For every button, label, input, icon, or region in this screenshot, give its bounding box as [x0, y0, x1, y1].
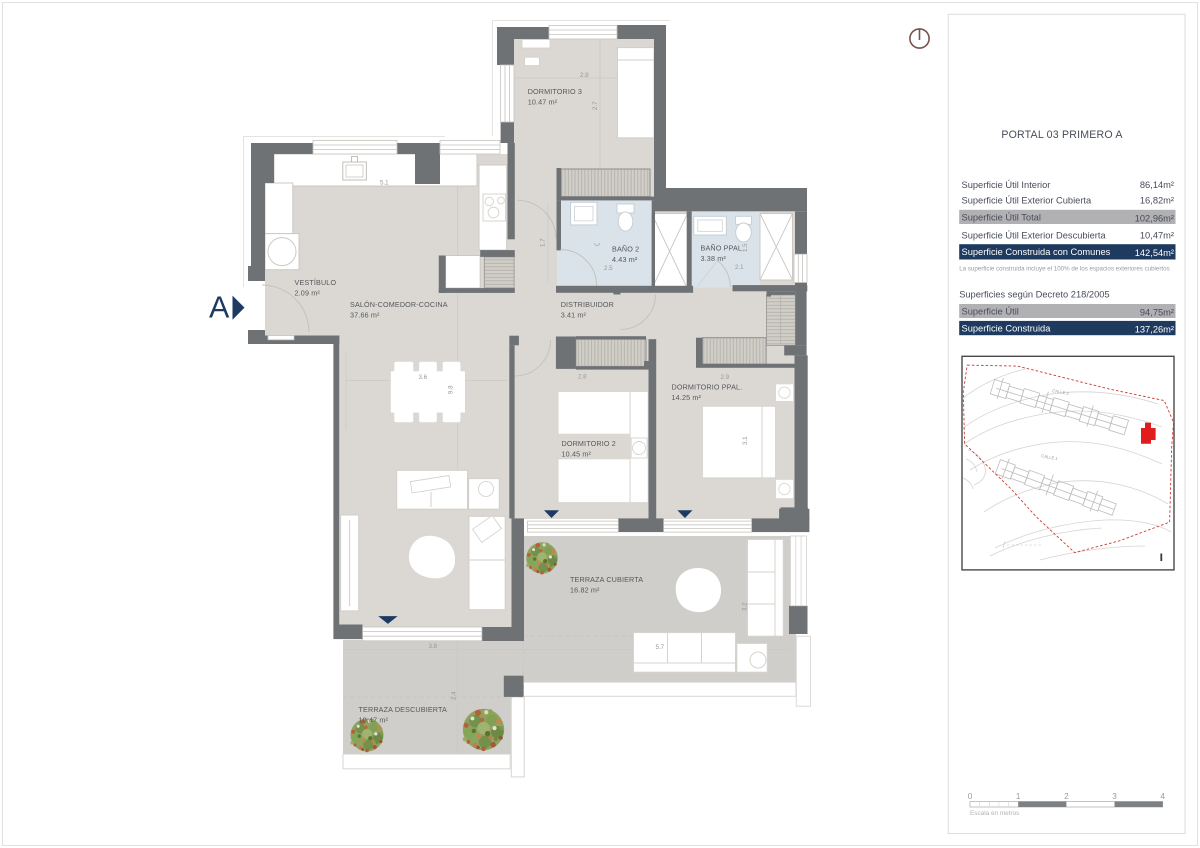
- svg-text:1.7: 1.7: [540, 238, 547, 247]
- svg-text:2.7: 2.7: [592, 101, 599, 110]
- svg-text:86,14m²: 86,14m²: [1140, 180, 1174, 190]
- svg-text:142,54m²: 142,54m²: [1135, 248, 1174, 258]
- svg-text:2.9: 2.9: [580, 72, 589, 79]
- svg-text:Superficie Útil Total: Superficie Útil Total: [962, 213, 1041, 223]
- svg-text:10.47 m²: 10.47 m²: [359, 716, 389, 725]
- svg-text:2.5: 2.5: [604, 265, 613, 272]
- svg-text:VESTÍBULO: VESTÍBULO: [295, 278, 337, 287]
- svg-text:1.5: 1.5: [742, 243, 749, 252]
- svg-text:0: 0: [968, 792, 973, 801]
- svg-text:5.1: 5.1: [380, 180, 389, 187]
- svg-text:2: 2: [1064, 792, 1069, 801]
- svg-text:Superficie Útil Interior: Superficie Útil Interior: [962, 180, 1051, 190]
- svg-text:10,47m²: 10,47m²: [1140, 231, 1174, 241]
- svg-text:3.2: 3.2: [742, 602, 749, 611]
- svg-text:3.38 m²: 3.38 m²: [701, 254, 727, 263]
- svg-text:DISTRIBUIDOR: DISTRIBUIDOR: [561, 300, 614, 309]
- svg-text:Escala en metros: Escala en metros: [970, 810, 1019, 817]
- svg-text:TERRAZA DESCUBIERTA: TERRAZA DESCUBIERTA: [359, 705, 448, 714]
- svg-text:2.1: 2.1: [735, 264, 744, 271]
- svg-text:Superficie Útil Exterior Descu: Superficie Útil Exterior Descubierta: [962, 231, 1107, 241]
- svg-text:16.82 m²: 16.82 m²: [570, 586, 600, 595]
- svg-text:16,82m²: 16,82m²: [1140, 196, 1174, 206]
- svg-text:A: A: [209, 291, 230, 325]
- svg-text:BAÑO PPAL.: BAÑO PPAL.: [701, 244, 745, 253]
- svg-text:La superficie construida inclu: La superficie construida incluye el 100%…: [959, 266, 1169, 273]
- svg-text:1: 1: [1016, 792, 1021, 801]
- svg-text:PORTAL 03 PRIMERO A: PORTAL 03 PRIMERO A: [1001, 129, 1123, 141]
- svg-text:3: 3: [1112, 792, 1117, 801]
- svg-text:10.45 m²: 10.45 m²: [562, 450, 592, 459]
- svg-text:2.9: 2.9: [721, 374, 730, 381]
- svg-text:Superficie Útil Exterior Cubie: Superficie Útil Exterior Cubierta: [962, 196, 1093, 206]
- svg-text:DORMITORIO 2: DORMITORIO 2: [562, 439, 616, 448]
- svg-text:3.41 m²: 3.41 m²: [561, 311, 587, 320]
- svg-text:TERRAZA CUBIERTA: TERRAZA CUBIERTA: [570, 575, 643, 584]
- svg-text:137,26m²: 137,26m²: [1135, 325, 1174, 335]
- svg-text:3.1: 3.1: [742, 436, 749, 445]
- svg-text:Superficie Construida: Superficie Construida: [962, 324, 1052, 334]
- svg-text:BAÑO 2: BAÑO 2: [612, 245, 639, 254]
- svg-text:2.8: 2.8: [578, 374, 587, 381]
- svg-text:3.6: 3.6: [419, 374, 428, 381]
- svg-text:3.8: 3.8: [429, 643, 438, 650]
- svg-text:Superficie Construida con Comu: Superficie Construida con Comunes: [962, 247, 1111, 257]
- svg-text:4: 4: [1160, 792, 1165, 801]
- svg-text:10.47 m²: 10.47 m²: [528, 98, 558, 107]
- svg-text:37.66 m²: 37.66 m²: [350, 311, 380, 320]
- svg-text:2.4: 2.4: [451, 691, 458, 700]
- svg-text:2.09 m²: 2.09 m²: [295, 289, 321, 298]
- svg-text:DORMITORIO PPAL.: DORMITORIO PPAL.: [672, 383, 743, 392]
- svg-text:Superficie Útil: Superficie Útil: [962, 307, 1019, 317]
- svg-text:9.8: 9.8: [448, 385, 455, 394]
- svg-text:4.43 m²: 4.43 m²: [612, 255, 638, 264]
- svg-text:SALÓN-COMEDOR-COCINA: SALÓN-COMEDOR-COCINA: [350, 300, 448, 309]
- svg-text:5.7: 5.7: [656, 644, 665, 651]
- svg-text:102,96m²: 102,96m²: [1135, 213, 1174, 223]
- svg-text:DORMITORIO 3: DORMITORIO 3: [528, 87, 582, 96]
- svg-text:14.25 m²: 14.25 m²: [672, 393, 702, 402]
- svg-text:94,75m²: 94,75m²: [1140, 308, 1174, 318]
- svg-text:Superficies según Decreto 218/: Superficies según Decreto 218/2005: [959, 290, 1109, 300]
